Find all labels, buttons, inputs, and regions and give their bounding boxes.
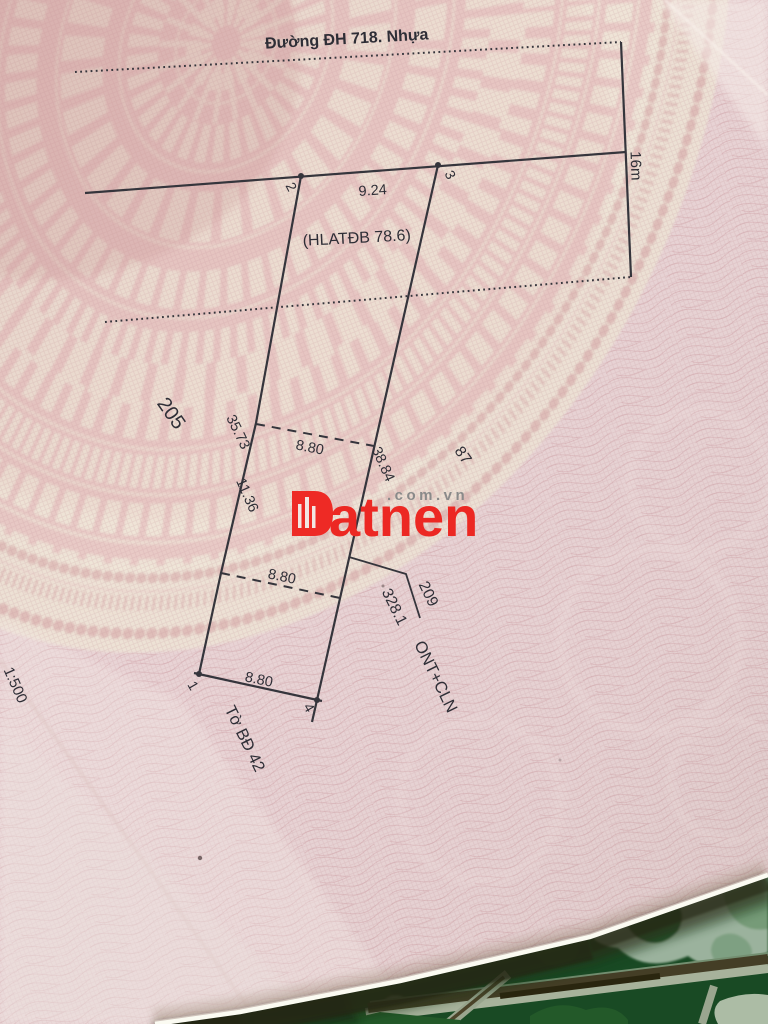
- svg-text:atnen: atnen: [329, 485, 478, 548]
- svg-text:16m: 16m: [626, 151, 644, 181]
- svg-text:9.24: 9.24: [358, 182, 387, 200]
